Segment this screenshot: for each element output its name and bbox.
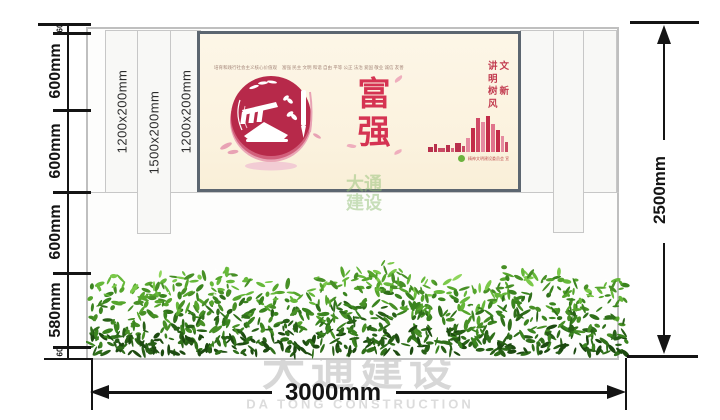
column-left-1: 1200x200mm	[105, 30, 138, 193]
column-size-label: 1500x200mm	[147, 90, 162, 174]
dim-label-60-bottom: 60	[56, 348, 65, 357]
dim-tick-bottom-right	[627, 355, 698, 358]
dim-tick	[53, 272, 91, 275]
dim-bottom-shaft-right	[396, 391, 609, 394]
slogan-text: 讲文明 树新风	[488, 61, 518, 111]
dim-label-3000: 3000mm	[285, 379, 381, 407]
dim-label-60-top: 60	[56, 24, 65, 33]
dim-label-600-3: 600mm	[47, 204, 65, 259]
poster-board: 培育和践行社会主义核心价值观富强 民主 文明 和谐 自由 平等 公正 法治 爱国…	[197, 31, 521, 192]
leaf-ornament	[394, 75, 404, 83]
dim-bottom-shaft-left	[106, 391, 272, 394]
column-right-3	[583, 30, 617, 193]
column-size-label: 1200x200mm	[114, 70, 129, 154]
column-right-1	[520, 30, 554, 193]
arrow-right-icon	[607, 385, 626, 399]
dim-extension-left	[91, 358, 93, 410]
column-size-label: 1200x200mm	[178, 70, 193, 154]
dim-label-600-2: 600mm	[47, 123, 65, 178]
watermark-poster: 大通建设	[344, 175, 384, 213]
credit-dot-icon	[458, 155, 465, 162]
column-left-2: 1500x200mm	[137, 30, 171, 234]
dim-tick	[38, 23, 91, 26]
dim-tick-top-right	[630, 21, 699, 24]
dim-right-shaft-top	[663, 42, 665, 140]
hedge-graphic	[86, 256, 630, 360]
footer-credit: 精神文明建设委员会 宣	[458, 153, 550, 164]
dim-tick	[53, 191, 91, 194]
papercut-circle-graphic	[216, 62, 326, 174]
dim-right-shaft-bottom	[663, 243, 665, 338]
dim-corner	[44, 358, 93, 360]
dim-label-600-1: 600mm	[47, 43, 65, 98]
theme-text-fuqiang: 富 强	[353, 76, 395, 152]
dim-label-2500: 2500mm	[650, 156, 670, 224]
column-right-2	[553, 30, 584, 233]
signage-wall-elevation-drawing: 1200x200mm 1500x200mm 1200x200mm 培育和践行社会…	[0, 0, 720, 420]
skyline-graphic	[428, 114, 508, 154]
dim-label-580: 580mm	[47, 282, 65, 337]
dim-tick	[53, 109, 91, 112]
dim-extension-right	[625, 358, 627, 410]
